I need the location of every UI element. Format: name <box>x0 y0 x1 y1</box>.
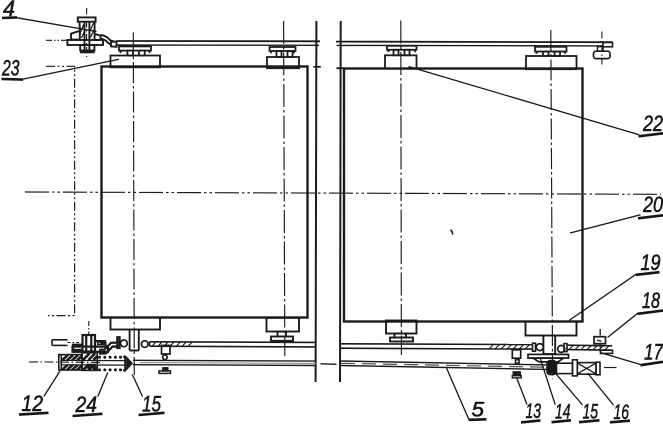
svg-text:5: 5 <box>472 399 485 422</box>
svg-text:23: 23 <box>1 56 20 81</box>
svg-text:22: 22 <box>642 111 663 136</box>
svg-text:18: 18 <box>642 288 661 313</box>
svg-text:17: 17 <box>644 340 663 365</box>
svg-text:20: 20 <box>642 192 663 217</box>
